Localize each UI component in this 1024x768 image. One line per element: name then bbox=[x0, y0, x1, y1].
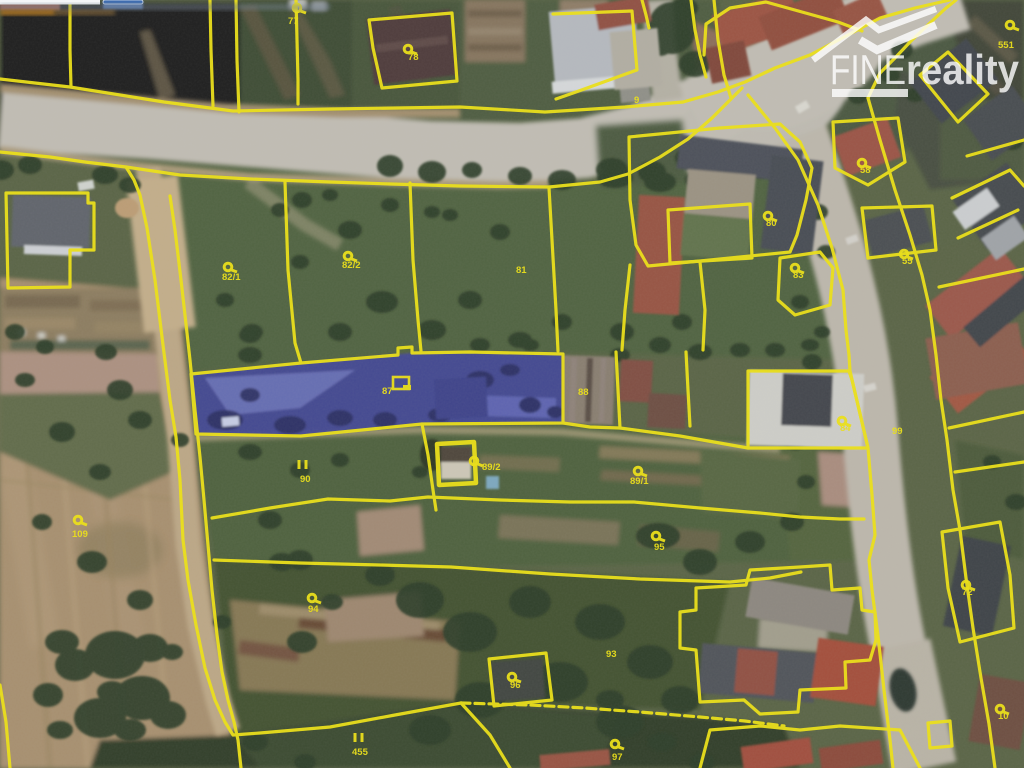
svg-text:FINE: FINE bbox=[830, 46, 906, 93]
svg-text:reality: reality bbox=[906, 46, 1020, 93]
